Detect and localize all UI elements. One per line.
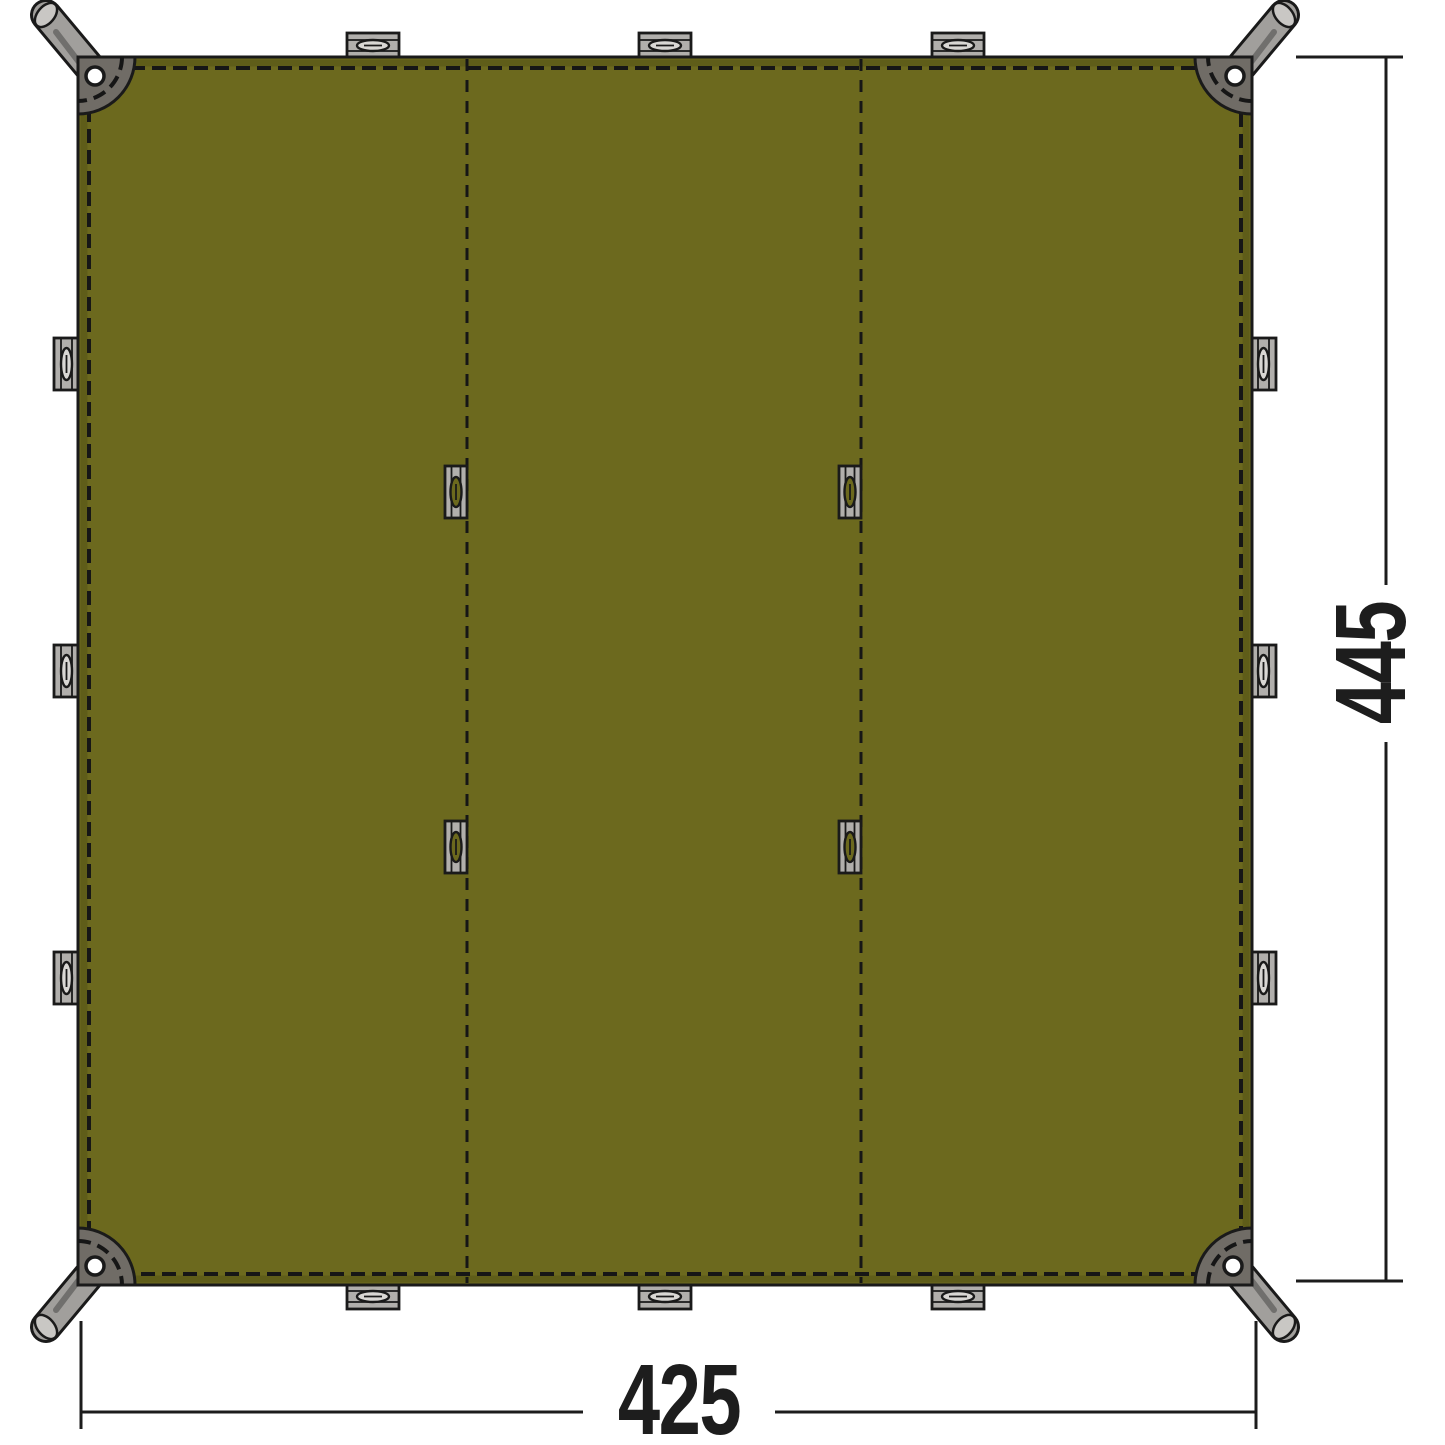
height-dimension-label: 445 xyxy=(1321,602,1421,724)
seam-loop-3 xyxy=(445,821,467,873)
edge-tab-top-1 xyxy=(347,33,399,59)
edge-tab-top-3 xyxy=(932,33,984,59)
tarp-body xyxy=(78,57,1252,1285)
edge-tab-bottom-2 xyxy=(639,1283,691,1309)
edge-tab-left-2 xyxy=(54,645,80,697)
edge-tab-left-3 xyxy=(54,952,80,1004)
seam-loop-2 xyxy=(839,466,861,518)
seam-loop-4 xyxy=(839,821,861,873)
edge-tab-top-2 xyxy=(639,33,691,59)
grommet-bottom-right-icon xyxy=(1224,1257,1242,1275)
grommet-bottom-left-icon xyxy=(86,1257,104,1275)
edge-tab-left-1 xyxy=(54,338,80,390)
edge-tab-right-2 xyxy=(1250,645,1276,697)
grommet-top-right-icon xyxy=(1226,67,1244,85)
seam-loop-1 xyxy=(445,466,467,518)
edge-tab-right-3 xyxy=(1250,952,1276,1004)
edge-tab-bottom-3 xyxy=(932,1283,984,1309)
tarp-graphic xyxy=(0,0,1445,1445)
edge-tab-bottom-1 xyxy=(347,1283,399,1309)
tarp-diagram: 425 445 xyxy=(0,0,1445,1445)
width-dimension-label: 425 xyxy=(618,1350,740,1445)
grommet-top-left-icon xyxy=(86,67,104,85)
edge-tab-right-1 xyxy=(1250,338,1276,390)
